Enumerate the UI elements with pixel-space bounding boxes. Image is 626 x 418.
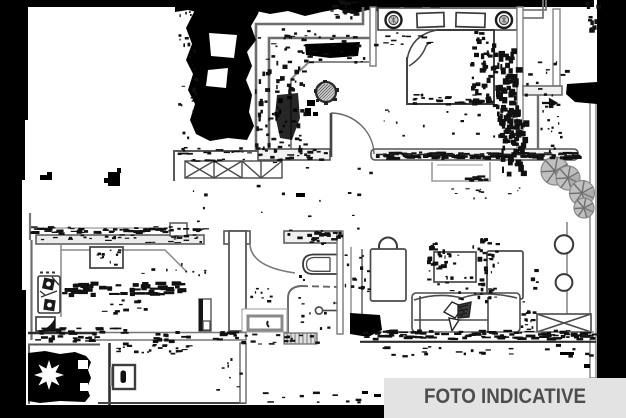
svg-text:FOTO INDICATIVE: FOTO INDICATIVE: [424, 384, 586, 408]
